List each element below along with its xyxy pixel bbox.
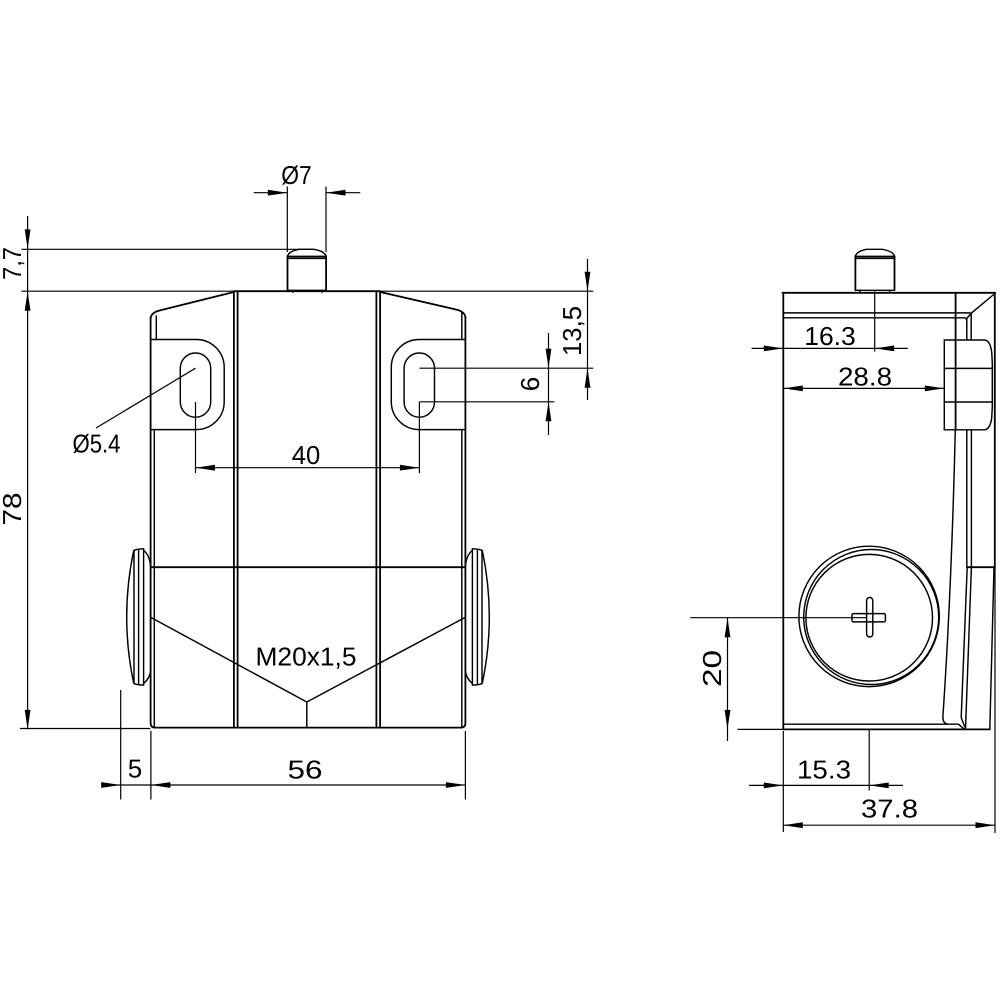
svg-text:56: 56 [288, 755, 323, 785]
svg-text:40: 40 [292, 440, 321, 470]
svg-text:20: 20 [697, 650, 727, 687]
svg-text:15.3: 15.3 [797, 755, 851, 785]
svg-text:37.8: 37.8 [861, 794, 918, 824]
svg-text:13,5: 13,5 [557, 306, 587, 356]
svg-text:78: 78 [0, 493, 27, 526]
svg-text:Ø5.4: Ø5.4 [73, 429, 121, 459]
svg-text:6: 6 [515, 377, 545, 391]
svg-text:Ø7: Ø7 [281, 160, 312, 190]
svg-text:5: 5 [128, 754, 142, 784]
svg-text:16.3: 16.3 [804, 321, 856, 351]
svg-text:M20x1,5: M20x1,5 [256, 642, 357, 672]
svg-text:28.8: 28.8 [838, 362, 892, 392]
svg-text:7,7: 7,7 [0, 247, 27, 280]
